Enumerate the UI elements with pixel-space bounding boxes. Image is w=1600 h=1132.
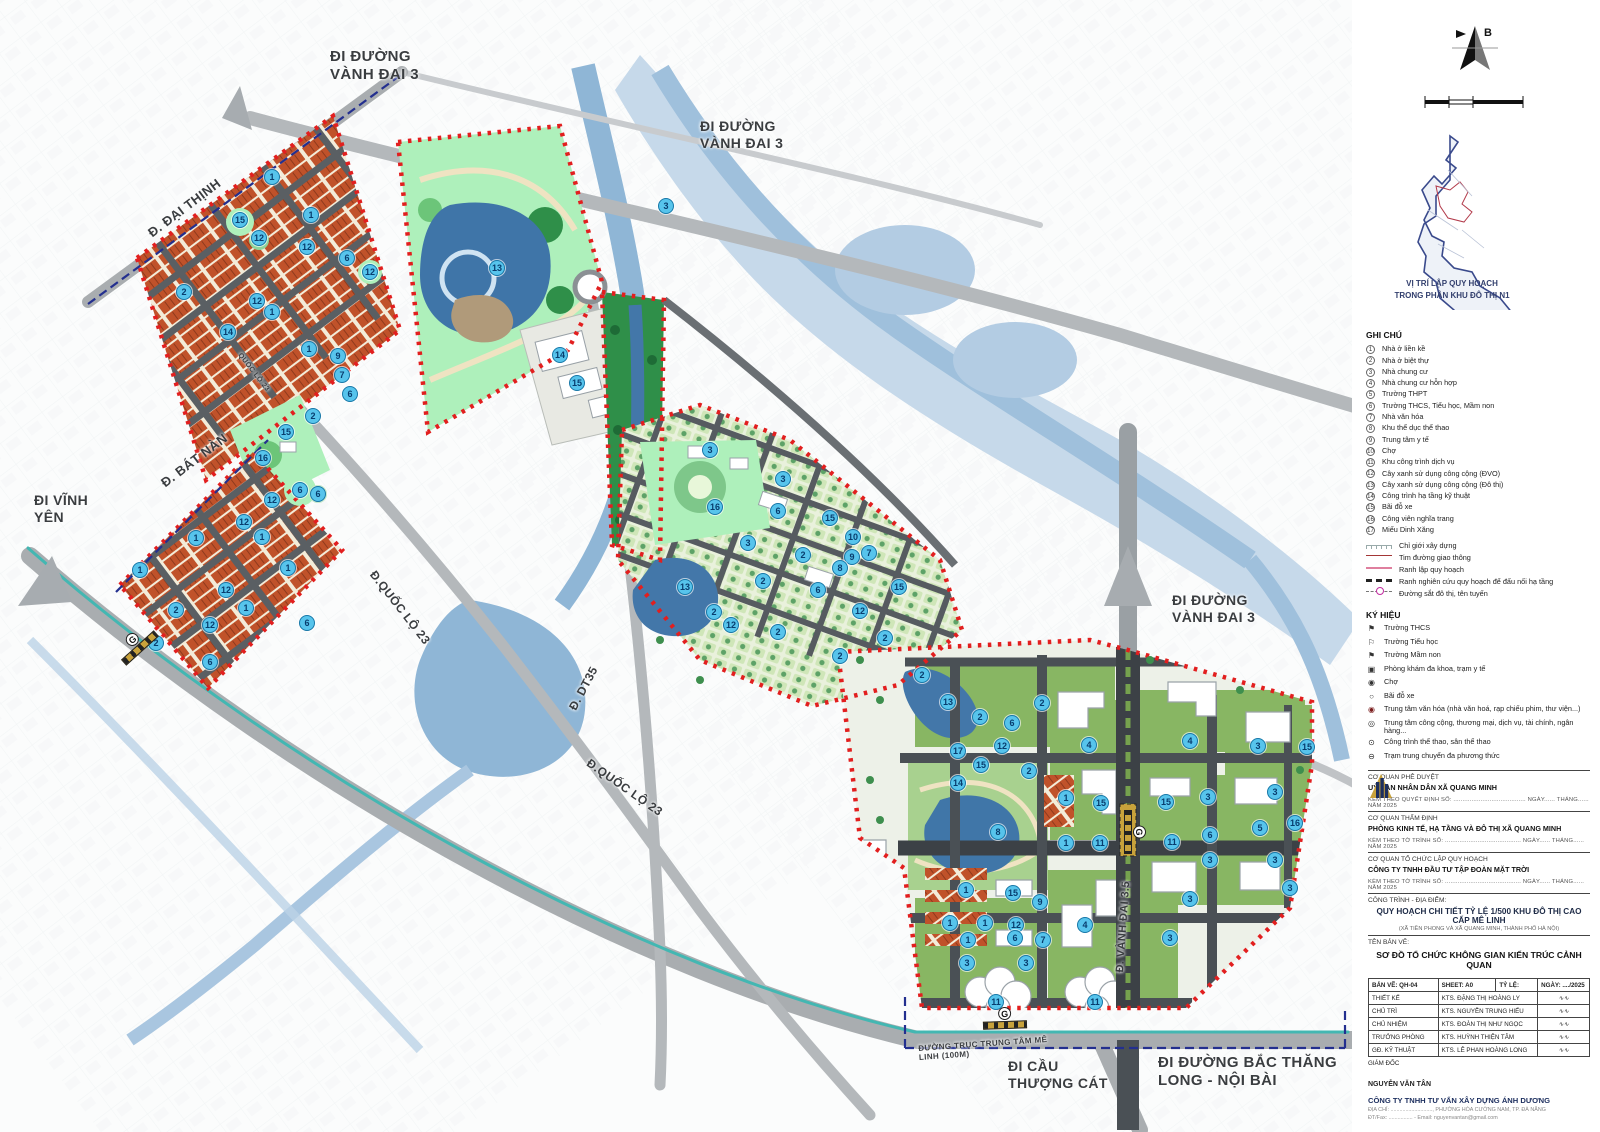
- block-marker: 12: [299, 239, 315, 255]
- block-marker: 6: [1202, 827, 1218, 843]
- role-name: KTS. ĐẶNG THỊ HOÀNG LY: [1438, 992, 1538, 1005]
- block-marker: 15: [973, 757, 989, 773]
- legend-line-label: Đường sắt đô thị, tên tuyến: [1399, 590, 1488, 599]
- role-name: KTS. LÊ PHAN HOÀNG LONG: [1438, 1044, 1538, 1057]
- block-marker: 12: [994, 738, 1010, 754]
- block-marker: 12: [236, 514, 252, 530]
- legend-item: 10Chợ: [1366, 446, 1592, 457]
- symbol-items: ⚑Trường THCS⚐Trường Tiểu học⚑Trường Mầm …: [1366, 624, 1592, 765]
- legend-item-label: Nhà ở biệt thự: [1382, 357, 1429, 366]
- block-marker: 13: [677, 579, 693, 595]
- block-marker: 1: [264, 304, 280, 320]
- block-marker: 1: [188, 530, 204, 546]
- block-marker: 2: [1034, 695, 1050, 711]
- director-label: GIÁM ĐỐC: [1368, 1060, 1590, 1067]
- legend-line-item: Ranh lập quy hoạch: [1366, 564, 1592, 576]
- block-marker: 17: [950, 743, 966, 759]
- block-marker: 1: [977, 915, 993, 931]
- block-marker: 8: [832, 560, 848, 576]
- block-marker: 6: [202, 654, 218, 670]
- legend-item: 1Nhà ở liền kề: [1366, 344, 1592, 355]
- legend-number-circle: 8: [1366, 424, 1375, 433]
- meta-cell: BẢN VẼ: QH-04: [1369, 979, 1439, 992]
- block-marker: 13: [489, 260, 505, 276]
- titleblock-body: PHÒNG KINH TẾ, HẠ TẦNG VÀ ĐÔ THỊ XÃ QUAN…: [1368, 824, 1590, 833]
- company-contact: ĐT/Fax: ................ - Email: nguyen…: [1368, 1115, 1550, 1121]
- meta-cell: TỶ LỆ:: [1496, 979, 1538, 992]
- ls-rail-icon: [1366, 591, 1392, 598]
- block-marker: 12: [218, 582, 234, 598]
- school-thcs-icon: ⚑: [1366, 624, 1377, 634]
- block-marker: 15: [1299, 739, 1315, 755]
- clinic-icon: ▣: [1366, 665, 1377, 675]
- block-marker: 3: [740, 535, 756, 551]
- block-marker: 15: [569, 375, 585, 391]
- legend-line-item: Ranh nghiên cứu quy hoạch để đấu nối hạ …: [1366, 576, 1592, 588]
- legend-number-circle: 12: [1366, 469, 1375, 478]
- block-marker: 2: [914, 667, 930, 683]
- block-marker: 7: [861, 545, 877, 561]
- block-marker: 5: [1252, 820, 1268, 836]
- legend-item-label: Chợ: [1382, 447, 1396, 456]
- legend-number-circle: 17: [1366, 526, 1375, 535]
- block-marker: 6: [1007, 930, 1023, 946]
- block-marker: 2: [770, 624, 786, 640]
- block-marker: 8: [990, 824, 1006, 840]
- role-row: CHỦ TRÌKTS. NGUYỄN TRUNG HIẾU∿∿: [1369, 1005, 1590, 1018]
- station-bar: [1124, 810, 1132, 854]
- block-marker: 10: [845, 529, 861, 545]
- legend-number-circle: 11: [1366, 458, 1375, 467]
- legend-line-item: Đường sắt đô thị, tên tuyến: [1366, 588, 1592, 600]
- block-marker: 4: [1081, 737, 1097, 753]
- symbol-item-label: Trung tâm văn hóa (nhà văn hoá, rạp chiế…: [1384, 705, 1580, 714]
- legend-item: 2Nhà ở biệt thự: [1366, 355, 1592, 366]
- side-panel: B VỊ TRÍ LẬP QUY HOẠCH TRONG PHÂN KHU ĐÔ…: [1352, 0, 1600, 1132]
- project-subtitle: (XÃ TIỀN PHONG VÀ XÃ QUANG MINH, THÀNH P…: [1368, 926, 1590, 932]
- block-marker: 12: [723, 617, 739, 633]
- block-marker: 15: [822, 510, 838, 526]
- block-marker: 1: [1058, 790, 1074, 806]
- block-marker: 9: [1032, 894, 1048, 910]
- legend-item: 12Cây xanh sử dụng công cộng (ĐVO): [1366, 468, 1592, 479]
- block-marker: 3: [775, 471, 791, 487]
- block-marker: 2: [1021, 763, 1037, 779]
- block-marker: 14: [552, 347, 568, 363]
- block-marker: 15: [891, 579, 907, 595]
- legend-item-label: Miếu Dinh Xăng: [1382, 526, 1434, 535]
- symbol-item: ◉Trung tâm văn hóa (nhà văn hoá, rạp chi…: [1366, 705, 1592, 717]
- role-label: CHỦ TRÌ: [1369, 1005, 1439, 1018]
- school-tieuhoc-icon: ⚐: [1366, 638, 1377, 648]
- station-bar: [983, 1020, 1027, 1030]
- titleblock-heading: CƠ QUAN THẨM ĐỊNH: [1368, 815, 1590, 822]
- symbol-item: ⊙Công trình thể thao, sân thể thao: [1366, 738, 1592, 750]
- legend-number-circle: 1: [1366, 345, 1375, 354]
- block-marker: 3: [1018, 955, 1034, 971]
- block-marker: 15: [1093, 795, 1109, 811]
- legend-number-circle: 16: [1366, 515, 1375, 524]
- legend-item-label: Công trình hạ tầng kỹ thuật: [1382, 492, 1470, 501]
- metro-station-marker: G: [983, 1020, 1027, 1030]
- block-marker: 2: [972, 709, 988, 725]
- block-marker: 6: [770, 503, 786, 519]
- transit-hub-icon: ⊖: [1366, 752, 1377, 762]
- symbol-item: ◉Chợ: [1366, 678, 1592, 690]
- legend-line-item: Chỉ giới xây dựng: [1366, 540, 1592, 552]
- block-marker: 15: [278, 424, 294, 440]
- company-logo: [1368, 770, 1394, 800]
- block-marker: 14: [950, 775, 966, 791]
- road-label: ĐI ĐƯỜNG BẮC THĂNG LONG - NỘI BÀI: [1158, 1054, 1337, 1089]
- symbol-item: ◎Trung tâm công cộng, thương mại, dịch v…: [1366, 719, 1592, 737]
- block-marker: 1: [238, 600, 254, 616]
- legend-items: 1Nhà ở liền kề2Nhà ở biệt thự3Nhà chung …: [1366, 344, 1592, 536]
- road-label: ĐI VĨNH YÊN: [34, 492, 88, 525]
- legend-item: 4Nhà chung cư hỗn hợp: [1366, 378, 1592, 389]
- road-label: ĐI ĐƯỜNG VÀNH ĐAI 3: [1172, 592, 1255, 625]
- block-marker: 3: [658, 198, 674, 214]
- legend-number-circle: 5: [1366, 390, 1375, 399]
- legend-item-label: Cây xanh sử dụng công cộng (Đô thị): [1382, 481, 1503, 490]
- market-icon: ◉: [1366, 678, 1377, 688]
- block-marker: 12: [362, 264, 378, 280]
- panel-graphics: B: [1352, 0, 1600, 310]
- inset-caption: VỊ TRÍ LẬP QUY HOẠCH TRONG PHÂN KHU ĐÔ T…: [1352, 278, 1552, 302]
- block-marker: 3: [959, 955, 975, 971]
- symbol-item-label: Trạm trung chuyển đa phương thức: [1384, 752, 1500, 761]
- block-marker: 12: [249, 293, 265, 309]
- signature-cell: ∿∿: [1538, 1044, 1590, 1057]
- block-marker: 3: [1282, 880, 1298, 896]
- role-row: THIẾT KẾKTS. ĐẶNG THỊ HOÀNG LY∿∿: [1369, 992, 1590, 1005]
- drawing-label: TÊN BẢN VẼ:: [1368, 939, 1590, 946]
- legend-item: 9Trung tâm y tế: [1366, 434, 1592, 445]
- block-marker: 3: [1182, 891, 1198, 907]
- block-marker: 2: [832, 648, 848, 664]
- symbol-item-label: Trung tâm công cộng, thương mại, dịch vụ…: [1384, 719, 1592, 737]
- legend-number-circle: 4: [1366, 379, 1375, 388]
- legend-item: 3Nhà chung cư: [1366, 367, 1592, 378]
- legend-item: 13Cây xanh sử dụng công cộng (Đô thị): [1366, 480, 1592, 491]
- symbol-item: ⊖Trạm trung chuyển đa phương thức: [1366, 752, 1592, 764]
- legend-item: 8Khu thể dục thể thao: [1366, 423, 1592, 434]
- symbol-item-label: Phòng khám đa khoa, trạm y tế: [1384, 665, 1485, 674]
- block-marker: 1: [942, 915, 958, 931]
- block-marker: 3: [1250, 738, 1266, 754]
- legend-item: 7Nhà văn hóa: [1366, 412, 1592, 423]
- legend-line-label: Chỉ giới xây dựng: [1399, 542, 1457, 551]
- legend-line-label: Tim đường giao thông: [1399, 554, 1471, 563]
- drawing-meta-table: BẢN VẼ: QH-04SHEET: A0TỶ LỆ:NGÀY: ..../2…: [1368, 978, 1590, 1057]
- block-marker: 1: [132, 562, 148, 578]
- legend-number-circle: 3: [1366, 368, 1375, 377]
- block-marker: 16: [255, 450, 271, 466]
- block-marker: 16: [1287, 815, 1303, 831]
- titleblock-heading: CƠ QUAN TỔ CHỨC LẬP QUY HOẠCH: [1368, 856, 1590, 863]
- block-marker: 6: [342, 386, 358, 402]
- block-marker: 11: [1092, 835, 1108, 851]
- block-marker: 6: [1004, 715, 1020, 731]
- legend-item-label: Nhà chung cư hỗn hợp: [1382, 379, 1457, 388]
- block-marker: 1: [303, 207, 319, 223]
- role-row: TRƯỞNG PHÒNGKTS. HUỲNH THIỆN TÂM∿∿: [1369, 1031, 1590, 1044]
- block-marker: 2: [706, 604, 722, 620]
- block-marker: 7: [334, 367, 350, 383]
- title-block: CƠ QUAN PHÊ DUYỆTUỶ BAN NHÂN DÂN XÃ QUAN…: [1368, 770, 1590, 1121]
- block-marker: 1: [960, 932, 976, 948]
- block-marker: 12: [202, 617, 218, 633]
- legend-item-label: Bãi đỗ xe: [1382, 503, 1412, 512]
- block-marker: 14: [220, 324, 236, 340]
- meta-cell: SHEET: A0: [1438, 979, 1496, 992]
- north-arrow-icon: B: [1452, 26, 1498, 70]
- legend-line-item: Tim đường giao thông: [1366, 552, 1592, 564]
- titleblock-section: CƠ QUAN PHÊ DUYỆTUỶ BAN NHÂN DÂN XÃ QUAN…: [1368, 770, 1590, 811]
- road-label: ĐI CẦU THƯỢNG CÁT: [1008, 1058, 1108, 1091]
- parking-icon: ○: [1366, 692, 1377, 702]
- role-name: KTS. HUỲNH THIỆN TÂM: [1438, 1031, 1538, 1044]
- titleblock-body: CÔNG TY TNHH ĐẦU TƯ TẬP ĐOÀN MẶT TRỜI: [1368, 865, 1590, 874]
- road-label: ĐI ĐƯỜNG VÀNH ĐAI 3: [330, 48, 419, 83]
- legend-item-label: Nhà ở liền kề: [1382, 345, 1425, 354]
- legend-number-circle: 13: [1366, 481, 1375, 490]
- block-marker: 4: [1182, 733, 1198, 749]
- legend-line-label: Ranh nghiên cứu quy hoạch để đấu nối hạ …: [1399, 578, 1553, 587]
- signature-cell: ∿∿: [1538, 992, 1590, 1005]
- block-marker: 12: [852, 603, 868, 619]
- symbols-title: KÝ HIỆU: [1366, 610, 1400, 620]
- block-marker: 12: [251, 230, 267, 246]
- signature-cell: ∿∿: [1538, 1005, 1590, 1018]
- block-marker: 2: [168, 602, 184, 618]
- block-marker: 1: [958, 882, 974, 898]
- legend-item: 14Công trình hạ tầng kỹ thuật: [1366, 491, 1592, 502]
- block-marker: 2: [755, 573, 771, 589]
- masterplan-map-sheet: 1151211221211612976142151661126121121216…: [0, 0, 1600, 1132]
- signature-cell: ∿∿: [1538, 1018, 1590, 1031]
- block-marker: 2: [877, 630, 893, 646]
- block-marker: 6: [339, 250, 355, 266]
- legend-item: 16Công viên nghĩa trang: [1366, 513, 1592, 524]
- company-name: CÔNG TY TNHH TƯ VẤN XÂY DỰNG ÁNH DƯƠNG: [1368, 1096, 1550, 1105]
- road-label: ĐI ĐƯỜNG VÀNH ĐAI 3: [700, 118, 783, 151]
- block-marker: 1: [280, 560, 296, 576]
- legend-number-circle: 9: [1366, 436, 1375, 445]
- role-row: CHỦ NHIỆMKTS. ĐOÀN THỊ NHƯ NGỌC∿∿: [1369, 1018, 1590, 1031]
- role-label: GĐ. KỸ THUẬT: [1369, 1044, 1439, 1057]
- legend-item: 17Miếu Dinh Xăng: [1366, 525, 1592, 536]
- symbol-item-label: Trường THCS: [1384, 624, 1430, 633]
- scale-bar: [1425, 96, 1523, 108]
- legend-item-label: Khu công trình dịch vụ: [1382, 458, 1455, 467]
- legend-number-circle: 10: [1366, 447, 1375, 456]
- legend-item-label: Trung tâm y tế: [1382, 436, 1429, 445]
- legend-item-label: Cây xanh sử dụng công cộng (ĐVO): [1382, 470, 1500, 479]
- role-name: KTS. NGUYỄN TRUNG HIẾU: [1438, 1005, 1538, 1018]
- block-marker: 12: [264, 492, 280, 508]
- legend-number-circle: 7: [1366, 413, 1375, 422]
- block-marker: 6: [292, 482, 308, 498]
- company-address: ĐỊA CHỈ: ............................, P…: [1368, 1107, 1550, 1113]
- symbol-item: ▣Phòng khám đa khoa, trạm y tế: [1366, 665, 1592, 677]
- legend-title: GHI CHÚ: [1366, 330, 1402, 340]
- block-marker: 2: [176, 284, 192, 300]
- legend-item-label: Trường THPT: [1382, 390, 1427, 399]
- role-label: THIẾT KẾ: [1369, 992, 1439, 1005]
- symbol-item: ⚑Trường THCS: [1366, 624, 1592, 636]
- svg-text:B: B: [1484, 27, 1492, 39]
- ls-build-icon: [1366, 545, 1392, 549]
- block-marker: 2: [305, 408, 321, 424]
- titleblock-note: KÈM THEO TỜ TRÌNH SỐ: ..................…: [1368, 838, 1590, 850]
- legend-item: 5Trường THPT: [1366, 389, 1592, 400]
- meta-cell: NGÀY: ..../2025: [1538, 979, 1590, 992]
- block-marker: 15: [1158, 794, 1174, 810]
- titleblock-section: CƠ QUAN TỔ CHỨC LẬP QUY HOẠCHCÔNG TY TNH…: [1368, 852, 1590, 893]
- block-marker: 1: [301, 341, 317, 357]
- symbol-item-label: Bãi đỗ xe: [1384, 692, 1414, 701]
- legend-number-circle: 15: [1366, 503, 1375, 512]
- block-marker: 3: [1202, 852, 1218, 868]
- legend-number-circle: 6: [1366, 402, 1375, 411]
- legend-line-items: Chỉ giới xây dựngTim đường giao thôngRan…: [1366, 540, 1592, 600]
- titleblock-section: CƠ QUAN THẨM ĐỊNHPHÒNG KINH TẾ, HẠ TẦNG …: [1368, 811, 1590, 852]
- meta-header-row: BẢN VẼ: QH-04SHEET: A0TỶ LỆ:NGÀY: ..../2…: [1369, 979, 1590, 992]
- block-marker: 4: [1077, 917, 1093, 933]
- legend-line-label: Ranh lập quy hoạch: [1399, 566, 1464, 575]
- block-marker: 3: [1162, 930, 1178, 946]
- legend-number-circle: 14: [1366, 492, 1375, 501]
- commerce-center-icon: ◎: [1366, 719, 1377, 729]
- school-mamnon-icon: ⚑: [1366, 651, 1377, 661]
- block-marker: 9: [330, 348, 346, 364]
- ls-study-icon: [1366, 579, 1392, 586]
- legend-item: 15Bãi đỗ xe: [1366, 502, 1592, 513]
- legend-item-label: Công viên nghĩa trang: [1382, 515, 1454, 524]
- symbol-item: ○Bãi đỗ xe: [1366, 692, 1592, 704]
- titleblock-heading: CƠ QUAN PHÊ DUYỆT: [1368, 774, 1590, 781]
- role-row: GĐ. KỸ THUẬTKTS. LÊ PHAN HOÀNG LONG∿∿: [1369, 1044, 1590, 1057]
- symbol-item: ⚑Trường Mầm non: [1366, 651, 1592, 663]
- drawing-title: SƠ ĐỒ TỔ CHỨC KHÔNG GIAN KIẾN TRÚC CẢNH …: [1368, 950, 1590, 970]
- legend-item: 6Trường THCS, Tiểu học, Mầm non: [1366, 400, 1592, 411]
- block-marker: 15: [1005, 885, 1021, 901]
- block-marker: 6: [310, 486, 326, 502]
- block-marker: 6: [299, 615, 315, 631]
- symbol-item: ⚐Trường Tiểu học: [1366, 638, 1592, 650]
- titleblock-note: KÈM THEO TỜ TRÌNH SỐ: ..................…: [1368, 879, 1590, 891]
- block-marker: 1: [264, 169, 280, 185]
- block-marker: 1: [1058, 835, 1074, 851]
- legend-item-label: Nhà văn hóa: [1382, 413, 1423, 422]
- block-marker: 11: [1164, 834, 1180, 850]
- block-marker: 2: [795, 547, 811, 563]
- block-marker: 1: [254, 529, 270, 545]
- culture-center-icon: ◉: [1366, 705, 1377, 715]
- symbol-item-label: Trường Mầm non: [1384, 651, 1441, 660]
- block-marker: 3: [1267, 852, 1283, 868]
- signature-cell: ∿∿: [1538, 1031, 1590, 1044]
- titleblock-note: KÈM THEO QUYẾT ĐỊNH SỐ: ................…: [1368, 797, 1590, 809]
- director-name: NGUYỄN VĂN TÂN: [1368, 1081, 1590, 1088]
- role-name: KTS. ĐOÀN THỊ NHƯ NGỌC: [1438, 1018, 1538, 1031]
- block-marker: 6: [810, 582, 826, 598]
- metro-station-marker: G: [1124, 810, 1132, 854]
- block-marker: 15: [232, 212, 248, 228]
- block-marker: 3: [1200, 789, 1216, 805]
- legend-item-label: Trường THCS, Tiểu học, Mầm non: [1382, 402, 1494, 411]
- symbol-item-label: Công trình thể thao, sân thể thao: [1384, 738, 1491, 747]
- station-g-label: G: [1133, 826, 1146, 839]
- symbol-item-label: Trường Tiểu học: [1384, 638, 1438, 647]
- role-label: TRƯỞNG PHÒNG: [1369, 1031, 1439, 1044]
- role-label: CHỦ NHIỆM: [1369, 1018, 1439, 1031]
- block-marker: 3: [1267, 784, 1283, 800]
- legend-item: 11Khu công trình dịch vụ: [1366, 457, 1592, 468]
- block-marker: 13: [940, 694, 956, 710]
- ls-plan-icon: [1366, 567, 1392, 574]
- legend-number-circle: 2: [1366, 356, 1375, 365]
- block-marker: 7: [1035, 932, 1051, 948]
- legend-item-label: Khu thể dục thể thao: [1382, 424, 1449, 433]
- legend-item-label: Nhà chung cư: [1382, 368, 1428, 377]
- symbol-item-label: Chợ: [1384, 678, 1398, 687]
- project-title: QUY HOẠCH CHI TIẾT TỶ LỆ 1/500 KHU ĐÔ TH…: [1368, 907, 1590, 925]
- titleblock-body: UỶ BAN NHÂN DÂN XÃ QUANG MINH: [1368, 783, 1590, 792]
- project-label: CÔNG TRÌNH - ĐỊA ĐIỂM:: [1368, 897, 1590, 904]
- ls-axis-icon: [1366, 555, 1392, 562]
- block-marker: 16: [707, 499, 723, 515]
- sport-icon: ⊙: [1366, 738, 1377, 748]
- block-marker: 11: [1087, 994, 1103, 1010]
- block-marker: 3: [702, 442, 718, 458]
